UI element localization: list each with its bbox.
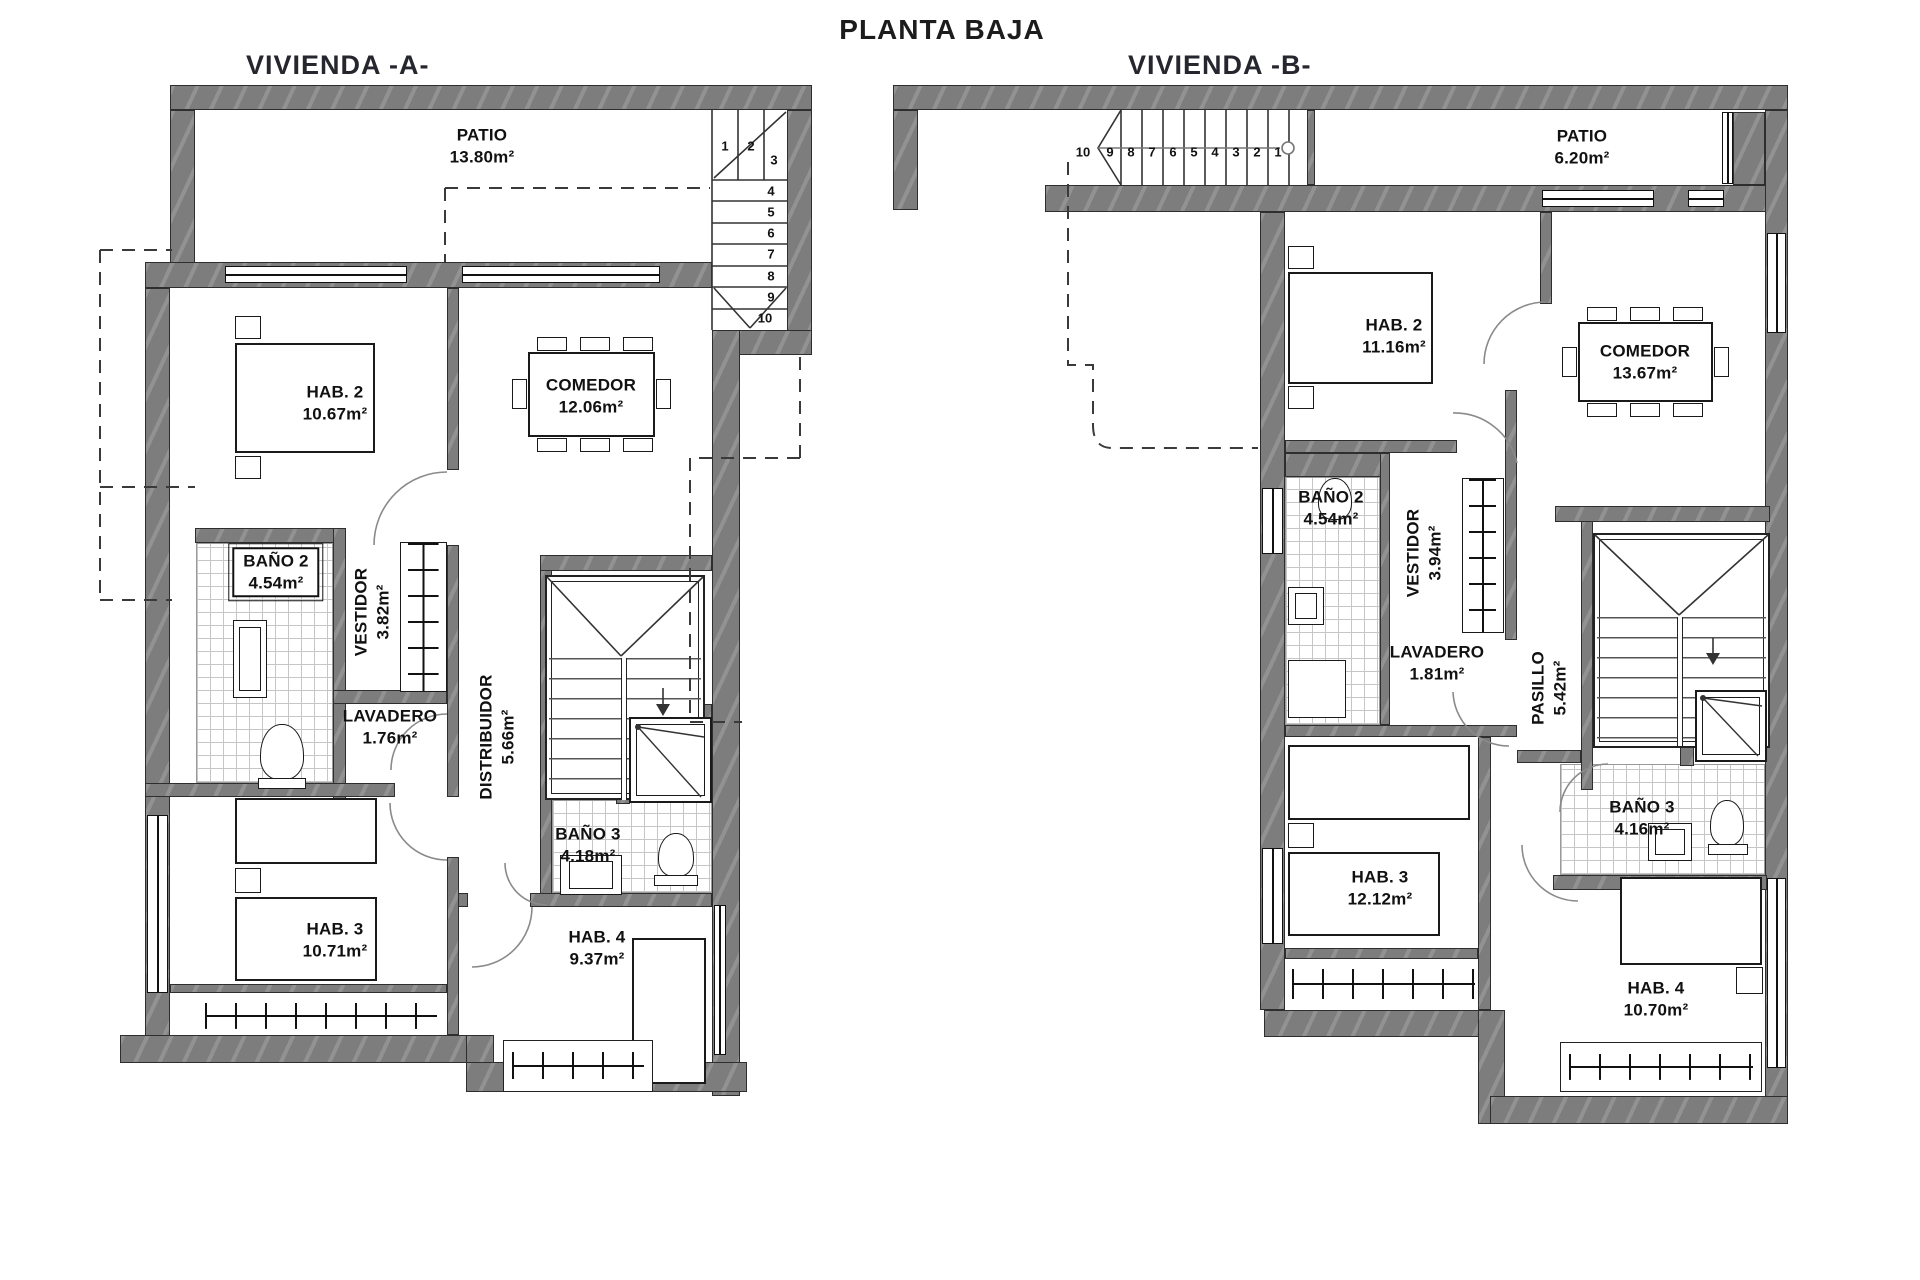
window	[1542, 190, 1654, 207]
stair-divider	[621, 658, 627, 800]
stair-step-number: 7	[1148, 145, 1155, 160]
chair	[1673, 307, 1703, 321]
closet-rail	[1292, 963, 1475, 1005]
sink	[233, 620, 267, 698]
interior-wall	[530, 893, 712, 907]
chair	[623, 337, 653, 351]
interior-wall	[1285, 948, 1478, 959]
interior-wall	[1478, 737, 1491, 1010]
chair	[1562, 347, 1577, 377]
room-name: LAVADERO	[343, 705, 437, 727]
chair	[1587, 403, 1617, 417]
room-name: HAB. 2	[1366, 314, 1423, 336]
room-area: 4.18m²	[560, 845, 615, 867]
bed	[235, 798, 377, 864]
window	[1722, 112, 1733, 184]
room-name: HAB. 2	[307, 381, 364, 403]
interior-wall	[1581, 520, 1593, 790]
room-area: 5.66m²	[497, 709, 519, 764]
stair-step-number: 8	[1127, 145, 1134, 160]
shower	[1695, 690, 1767, 762]
stair-step-number: 1	[721, 139, 728, 154]
room-name: BAÑO 3	[1609, 796, 1674, 818]
interior-wall	[1307, 110, 1315, 185]
bed	[1620, 877, 1762, 965]
window	[1767, 878, 1786, 1068]
room-area: 11.16m²	[1362, 336, 1426, 358]
interior-wall	[1285, 725, 1517, 737]
room-label-pasillo-b: PASILLO 5.42m²	[1527, 651, 1571, 725]
closet-rail	[205, 998, 437, 1034]
window	[1262, 848, 1283, 944]
interior-wall	[1555, 506, 1770, 522]
room-label-distribuidor-a: DISTRIBUIDOR 5.66m²	[475, 674, 519, 799]
room-area: 13.67m²	[1613, 362, 1678, 384]
interior-wall	[195, 528, 335, 543]
window	[1262, 488, 1283, 554]
room-label-patio-b: PATIO 6.20m²	[1554, 125, 1609, 169]
room-label-hab4-b: HAB. 4 10.70m²	[1624, 977, 1689, 1021]
chair	[580, 438, 610, 452]
room-name: COMEDOR	[546, 374, 636, 396]
toilet-base	[654, 875, 698, 886]
room-area: 4.54m²	[1303, 508, 1358, 530]
room-area: 10.71m²	[303, 940, 368, 962]
stair-step-number: 5	[1190, 145, 1197, 160]
room-name: BAÑO 2	[243, 550, 308, 572]
toilet	[1710, 800, 1744, 846]
room-label-bano3-b: BAÑO 3 4.16m²	[1609, 796, 1674, 840]
room-area: 12.06m²	[559, 396, 624, 418]
closet-rail	[1569, 1049, 1753, 1085]
wardrobe-rail	[1462, 478, 1504, 633]
room-area: 4.16m²	[1614, 818, 1669, 840]
sink-basin	[1295, 593, 1317, 619]
room-name: HAB. 4	[569, 926, 626, 948]
window	[714, 905, 726, 1055]
room-area: 1.76m²	[362, 727, 417, 749]
room-area: 5.42m²	[1549, 660, 1571, 715]
chair	[656, 379, 671, 409]
window	[1688, 190, 1724, 207]
chair	[1587, 307, 1617, 321]
exterior-wall	[170, 85, 812, 110]
room-label-patio-a: PATIO 13.80m²	[450, 124, 515, 168]
vivienda-b-title: VIVIENDA -B-	[1128, 50, 1312, 81]
nightstand	[235, 868, 261, 893]
exterior-wall	[893, 85, 1788, 110]
room-name: HAB. 3	[307, 918, 364, 940]
stair-step-number: 9	[1106, 145, 1113, 160]
room-name: BAÑO 2	[1298, 486, 1363, 508]
room-label-bano2-a: BAÑO 2 4.54m²	[232, 547, 319, 597]
room-area: 3.94m²	[1424, 525, 1446, 580]
room-label-hab2-b: HAB. 2 11.16m²	[1362, 314, 1426, 358]
room-area: 10.67m²	[303, 403, 368, 425]
stair-step-number: 6	[767, 226, 774, 241]
shower-tray	[1702, 697, 1760, 755]
closet	[503, 1040, 653, 1092]
nightstand	[235, 456, 261, 479]
room-label-vestidor-a: VESTIDOR 3.82m²	[350, 568, 394, 657]
room-label-hab2-a: HAB. 2 10.67m²	[303, 381, 368, 425]
stair-step-number: 5	[767, 205, 774, 220]
exterior-wall	[787, 110, 812, 355]
room-area: 4.54m²	[248, 572, 303, 594]
closet	[1560, 1042, 1762, 1092]
wardrobe-rail	[400, 542, 447, 692]
interior-wall	[1285, 453, 1385, 477]
sink	[1288, 587, 1324, 625]
exterior-wall	[893, 110, 918, 210]
interior-wall	[170, 984, 447, 993]
room-label-hab4-a: HAB. 4 9.37m²	[569, 926, 626, 970]
chair	[537, 337, 567, 351]
stair-step-number: 3	[770, 153, 777, 168]
sink-basin	[239, 627, 261, 691]
chair	[1673, 403, 1703, 417]
room-name: COMEDOR	[1600, 340, 1690, 362]
room-area: 1.81m²	[1409, 663, 1464, 685]
stair-step-number: 6	[1169, 145, 1176, 160]
room-area: 13.80m²	[450, 146, 515, 168]
shower	[629, 717, 712, 803]
room-label-comedor-a: COMEDOR 12.06m²	[546, 374, 636, 418]
room-label-bano3-a: BAÑO 3 4.18m²	[555, 823, 620, 867]
nightstand	[1288, 386, 1314, 409]
closet-rail	[512, 1047, 644, 1085]
window	[225, 266, 407, 283]
interior-wall	[447, 288, 459, 470]
toilet	[260, 724, 304, 780]
toilet-base	[1708, 844, 1748, 855]
chair	[580, 337, 610, 351]
room-label-comedor-b: COMEDOR 13.67m²	[1600, 340, 1690, 384]
room-label-vestidor-b: VESTIDOR 3.94m²	[1402, 509, 1446, 598]
shower-tray	[636, 724, 705, 796]
exterior-wall	[120, 1035, 492, 1063]
stair-step-number: 2	[1253, 145, 1260, 160]
interior-wall	[333, 690, 447, 704]
nightstand	[235, 316, 261, 339]
stair-step-number: 1	[1274, 145, 1281, 160]
room-name: HAB. 4	[1628, 977, 1685, 999]
exterior-wall	[1733, 112, 1765, 185]
interior-wall	[447, 545, 459, 797]
window	[1767, 233, 1786, 333]
interior-wall	[1505, 390, 1517, 640]
room-name: LAVADERO	[1390, 641, 1484, 663]
vivienda-a-title: VIVIENDA -A-	[246, 50, 430, 81]
interior-wall	[447, 857, 459, 1035]
room-name: VESTIDOR	[1402, 509, 1424, 598]
room-name: BAÑO 3	[555, 823, 620, 845]
toilet-base	[258, 778, 306, 789]
chair	[1630, 307, 1660, 321]
room-label-lavadero-a: LAVADERO 1.76m²	[343, 705, 437, 749]
chair	[1714, 347, 1729, 377]
room-label-lavadero-b: LAVADERO 1.81m²	[1390, 641, 1484, 685]
room-area: 12.12m²	[1348, 888, 1413, 910]
stair-step-number: 8	[767, 269, 774, 284]
chair	[623, 438, 653, 452]
stair-step-number: 4	[767, 184, 774, 199]
stair-step-number: 4	[1211, 145, 1218, 160]
room-area: 3.82m²	[372, 584, 394, 639]
interior-wall	[1380, 453, 1390, 725]
chair	[512, 379, 527, 409]
page-title: PLANTA BAJA	[839, 14, 1044, 46]
interior-wall	[540, 555, 712, 571]
stair-divider	[1677, 617, 1683, 746]
interior-wall	[1285, 440, 1457, 453]
exterior-wall	[1490, 1096, 1788, 1124]
exterior-wall	[1045, 185, 1788, 212]
window	[147, 815, 168, 993]
stair-step-number: 7	[767, 247, 774, 262]
exterior-wall	[1264, 1010, 1505, 1037]
chair	[1630, 403, 1660, 417]
room-name: PASILLO	[1527, 651, 1549, 725]
nightstand	[1288, 823, 1314, 848]
room-name: VESTIDOR	[350, 568, 372, 657]
interior-wall	[1540, 212, 1552, 304]
room-name: PATIO	[1557, 125, 1607, 147]
stair-step-number: 3	[1232, 145, 1239, 160]
stair-step-number: 2	[747, 139, 754, 154]
stair-step-number: 9	[767, 290, 774, 305]
room-area: 6.20m²	[1554, 147, 1609, 169]
room-name: PATIO	[457, 124, 507, 146]
room-label-hab3-b: HAB. 3 12.12m²	[1348, 866, 1413, 910]
window	[462, 266, 660, 283]
room-name: HAB. 3	[1352, 866, 1409, 888]
washing-machine	[1288, 660, 1346, 718]
chair	[537, 438, 567, 452]
stair-step-number: 10	[1076, 145, 1090, 160]
bed	[1288, 745, 1470, 820]
room-label-bano2-b: BAÑO 2 4.54m²	[1298, 486, 1363, 530]
room-area: 9.37m²	[569, 948, 624, 970]
interior-wall	[1517, 750, 1581, 763]
stool	[1736, 967, 1763, 994]
room-name: DISTRIBUIDOR	[475, 674, 497, 799]
room-area: 10.70m²	[1624, 999, 1689, 1021]
floorplan-canvas: PLANTA BAJA VIVIENDA -A-	[0, 0, 1920, 1280]
exterior-wall	[170, 110, 195, 265]
nightstand	[1288, 246, 1314, 269]
stair-step-number: 10	[758, 311, 772, 326]
room-label-hab3-a: HAB. 3 10.71m²	[303, 918, 368, 962]
interior-wall	[333, 528, 346, 800]
toilet	[658, 833, 694, 877]
